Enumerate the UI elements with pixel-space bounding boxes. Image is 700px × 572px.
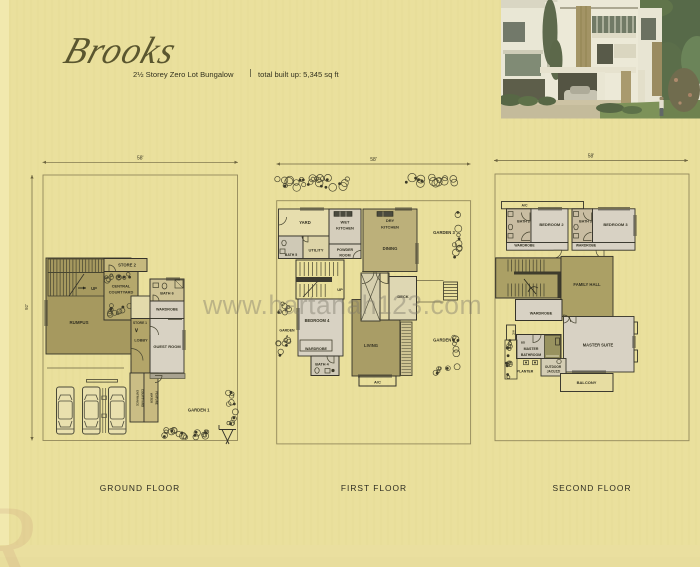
svg-text:WARDROBE: WARDROBE [576,244,597,248]
svg-text:RUMPUS: RUMPUS [69,320,88,325]
svg-text:58': 58' [370,157,377,163]
svg-text:GARDEN 3: GARDEN 3 [433,230,455,235]
svg-text:STORE 2: STORE 2 [118,263,137,268]
svg-text:2½ Storey Zero Lot Bungalow: 2½ Storey Zero Lot Bungalow [133,70,234,79]
svg-text:BEDROOM 3: BEDROOM 3 [603,222,628,227]
svg-text:KITCHEN: KITCHEN [336,226,354,231]
svg-text:KITCHEN: KITCHEN [381,225,399,230]
svg-text:BATHROOM: BATHROOM [521,353,541,357]
svg-text:PLANTER: PLANTER [517,370,534,374]
svg-text:DRY: DRY [386,218,395,223]
svg-text:92': 92' [24,304,29,310]
svg-text:CENTRAL: CENTRAL [112,284,131,289]
svg-text:YARD: YARD [299,220,310,225]
svg-text:WARDROBE: WARDROBE [530,312,553,316]
svg-text:ROOM: ROOM [339,254,350,258]
svg-text:ENTRANCE: ENTRANCE [136,390,140,406]
svg-text:WATER: WATER [150,393,154,404]
svg-text:BATH 6: BATH 6 [160,292,173,296]
svg-text:total built up: 5,345 sq ft: total built up: 5,345 sq ft [258,70,340,79]
svg-text:WET: WET [341,220,350,225]
svg-text:WARDROBE: WARDROBE [156,308,178,312]
svg-text:GARDEN: GARDEN [279,329,295,333]
svg-text:MASTER SUITE: MASTER SUITE [583,343,614,348]
svg-text:BATH 5: BATH 5 [285,253,297,257]
svg-text:A/C: A/C [512,330,516,336]
svg-text:WARDROBE: WARDROBE [305,347,327,351]
svg-text:COURTYARD: COURTYARD [109,290,134,295]
svg-text:A/C: A/C [521,204,528,208]
svg-text:BALCONY: BALCONY [577,380,597,385]
svg-text:FIRST FLOOR: FIRST FLOOR [341,483,407,493]
svg-text:58': 58' [588,154,595,160]
svg-text:UP: UP [91,286,97,291]
svg-text:58': 58' [137,156,144,162]
svg-text:∨: ∨ [134,328,138,334]
svg-text:OUTDOOR: OUTDOOR [545,365,562,369]
svg-text:STORE 1: STORE 1 [133,321,147,325]
svg-text:Brooks: Brooks [59,30,182,72]
svg-text:GROUND FLOOR: GROUND FLOOR [100,483,180,493]
svg-text:BATH 2: BATH 2 [517,220,530,224]
svg-text:GARDEN 1: GARDEN 1 [188,408,210,413]
svg-text:BEDROOM 2: BEDROOM 2 [539,222,564,227]
svg-text:FEATURE: FEATURE [155,391,159,405]
svg-text:BATH 4: BATH 4 [315,363,329,367]
svg-text:R: R [0,482,36,567]
svg-text:LIVING: LIVING [364,343,378,348]
svg-text:DINING: DINING [383,246,398,251]
svg-text:JACUZZI: JACUZZI [547,370,561,374]
svg-text:SECOND FLOOR: SECOND FLOOR [552,483,631,493]
svg-text:POWDER: POWDER [337,248,354,252]
svg-text:FAMILY HALL: FAMILY HALL [573,282,601,287]
svg-text:A/C: A/C [374,380,381,385]
svg-text:MASTER: MASTER [524,347,539,351]
svg-text:UTILITY: UTILITY [308,248,323,253]
svg-text:www.hartanah123.com: www.hartanah123.com [202,290,482,320]
svg-text:LOBBY: LOBBY [134,339,148,343]
svg-text:GUEST ROOM: GUEST ROOM [153,344,181,349]
svg-text:WARDROBE: WARDROBE [514,244,535,248]
